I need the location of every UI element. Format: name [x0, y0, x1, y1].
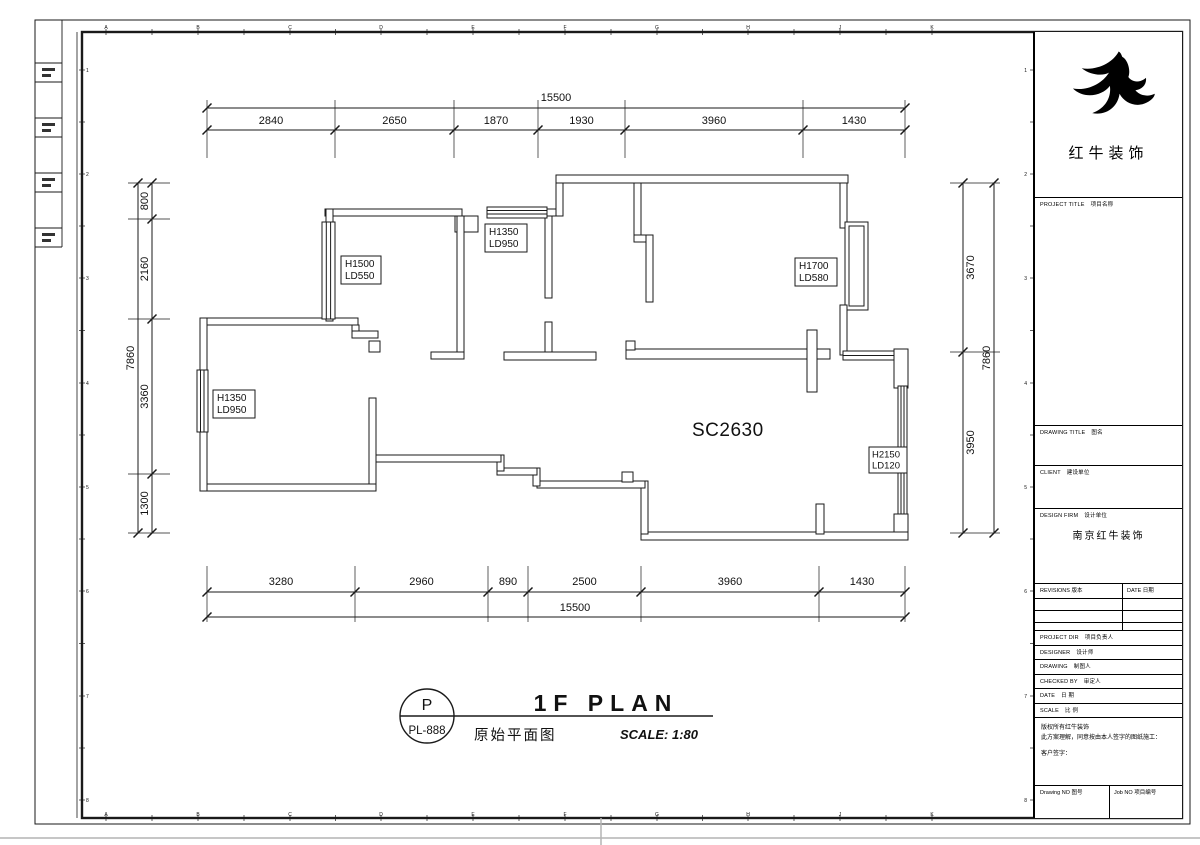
dim-label: 890 [499, 576, 517, 588]
window-left-lower [197, 370, 208, 432]
wall [352, 331, 378, 338]
revision-row [1035, 598, 1182, 610]
section-project-title: PROJECT TITLE项目名称 [1035, 197, 1182, 425]
svg-text:LD580: LD580 [799, 273, 829, 284]
dim-label: 15500 [560, 602, 591, 614]
wall [556, 175, 848, 183]
plan-scale: SCALE: 1:80 [620, 727, 699, 742]
dim-label: 3670 [965, 255, 977, 279]
svg-text:LD120: LD120 [872, 461, 900, 472]
dim-label: 1430 [842, 115, 866, 127]
window-tag: H1350 LD950 [213, 390, 255, 418]
svg-text:LD950: LD950 [489, 239, 519, 250]
row-scale: SCALE比 例 [1035, 703, 1182, 717]
wall [816, 504, 824, 534]
dims.top: 28402650187019303960143015500 [203, 92, 910, 158]
revision-row [1035, 610, 1182, 622]
window-tag: H1700 LD580 [795, 258, 837, 286]
window-tag: H2150 LD120 [869, 447, 907, 473]
wall [807, 330, 817, 392]
grid-number: 6 [1024, 589, 1027, 595]
plan-title-group: P PL-888 1F PLAN 原始平面图 SCALE: 1:80 [400, 689, 713, 744]
wall [325, 209, 462, 216]
svg-text:H1350: H1350 [217, 393, 247, 404]
wall [369, 455, 501, 462]
section-client: CLIENT建设单位 [1035, 465, 1182, 508]
wall [840, 305, 847, 355]
dim-label: 800 [139, 192, 151, 210]
footer-divider [1109, 785, 1110, 818]
floor-plan [197, 175, 908, 540]
grid-number: 7 [1024, 694, 1027, 700]
dim-label: 3960 [718, 576, 742, 588]
dims.left: 8002160336013007860 [125, 179, 170, 538]
dim-label: 3960 [702, 115, 726, 127]
svg-text:H2150: H2150 [872, 450, 900, 461]
dim-label: 3950 [965, 430, 977, 454]
cad-canvas: H1500 LD550 H1350 LD950 H1700 LD580 H135… [0, 0, 1200, 845]
dim-label: 7860 [981, 346, 993, 370]
row-project-dir: PROJECT DIR项目负责人 [1035, 630, 1182, 645]
strip-text-marks [42, 68, 55, 242]
dim-label: 2500 [572, 576, 596, 588]
grid-number: 3 [86, 276, 89, 282]
door-frame [369, 341, 380, 352]
section-drawing-title: DRAWING TITLE图名 [1035, 425, 1182, 465]
dim-label: 1870 [484, 115, 508, 127]
svg-text:H1700: H1700 [799, 261, 829, 272]
grid-number: 3 [1024, 276, 1027, 282]
dims.right: 367039507860 [950, 179, 1000, 538]
window-bay-right [845, 222, 868, 310]
row-drawing: DRAWING制图人 [1035, 659, 1182, 674]
row-checked-by: CHECKED BY审定人 [1035, 674, 1182, 688]
wall [646, 235, 653, 302]
grid-number: 2 [1024, 172, 1027, 178]
dim-label: 2960 [409, 576, 433, 588]
window-sunroom-top [843, 351, 896, 360]
wall [369, 398, 376, 491]
dim-label: 1430 [850, 576, 874, 588]
wall-pier [894, 349, 908, 388]
section-design-firm: DESIGN FIRM设计单位 南京红牛装饰 [1035, 508, 1182, 583]
grid-number: 5 [1024, 485, 1027, 491]
wall [457, 216, 464, 357]
svg-text:LD950: LD950 [217, 405, 247, 416]
symbol-code: PL-888 [408, 725, 445, 737]
wall [840, 183, 847, 228]
dims.bottom: 3280296089025003960143015500 [203, 566, 910, 622]
wall [431, 352, 464, 359]
grid-number: 5 [86, 485, 89, 491]
revision-row [1035, 622, 1182, 630]
wall [545, 322, 552, 355]
door-frame [626, 341, 635, 350]
symbol-letter: P [422, 697, 433, 714]
row-designer: DESIGNER设计师 [1035, 645, 1182, 659]
grid-number: 4 [86, 381, 89, 387]
grid-number: 4 [1024, 381, 1027, 387]
company-name: 红牛装饰 [1035, 142, 1182, 163]
window-left-upper [322, 222, 335, 319]
wall [200, 484, 376, 491]
wall [634, 183, 641, 241]
grid-number: 1 [1024, 68, 1027, 74]
dim-label: 2160 [139, 257, 151, 281]
grid-number: 6 [86, 589, 89, 595]
sc-label: SC2630 [692, 420, 764, 441]
window-top-center [487, 207, 547, 218]
redbull-logo-icon [1060, 48, 1158, 136]
drawing-sheet: H1500 LD550 H1350 LD950 H1700 LD580 H135… [0, 0, 1200, 845]
dim-label: 2840 [259, 115, 283, 127]
wall [641, 532, 908, 540]
dim-label: 1930 [569, 115, 593, 127]
row-date: DATE日 期 [1035, 688, 1182, 703]
title-block: 红牛装饰 PROJECT TITLE项目名称 DRAWING TITLE图名 C… [1033, 32, 1182, 818]
dim-label: 1300 [139, 491, 151, 515]
grid-number: 8 [1024, 798, 1027, 804]
wall [545, 216, 552, 298]
design-firm-name: 南京红牛装饰 [1035, 527, 1182, 542]
wall [626, 349, 830, 359]
dim-label: 3360 [139, 384, 151, 408]
svg-text:H1350: H1350 [489, 227, 519, 238]
left-reference-strip [35, 20, 62, 247]
grid-number: 2 [86, 172, 89, 178]
door-frame [622, 472, 633, 482]
plan-subtitle: 原始平面图 [474, 727, 557, 744]
dim-label: 15500 [541, 92, 572, 104]
wall [504, 352, 596, 360]
dim-label: 2650 [382, 115, 406, 127]
plan-title: 1F PLAN [534, 690, 679, 716]
svg-text:LD550: LD550 [345, 271, 375, 282]
svg-text:H1500: H1500 [345, 259, 375, 270]
window-tag: H1350 LD950 [485, 224, 527, 252]
grid-number: 1 [86, 68, 89, 74]
section-notes: 版权所有红牛装饰 此方案理解，同意按由本人签字的图纸施工： 客户签字： [1035, 717, 1182, 785]
dim-label: 3280 [269, 576, 293, 588]
window-tag: H1500 LD550 [341, 256, 381, 284]
grid-number: 8 [86, 798, 89, 804]
wall [641, 481, 648, 534]
revisions-divider [1122, 583, 1123, 630]
revisions-header: REVISIONS 版本 DATE 日期 [1035, 583, 1182, 598]
screen-artifacts [0, 818, 1200, 845]
grid-number: 7 [86, 694, 89, 700]
dim-label: 7860 [125, 346, 137, 370]
